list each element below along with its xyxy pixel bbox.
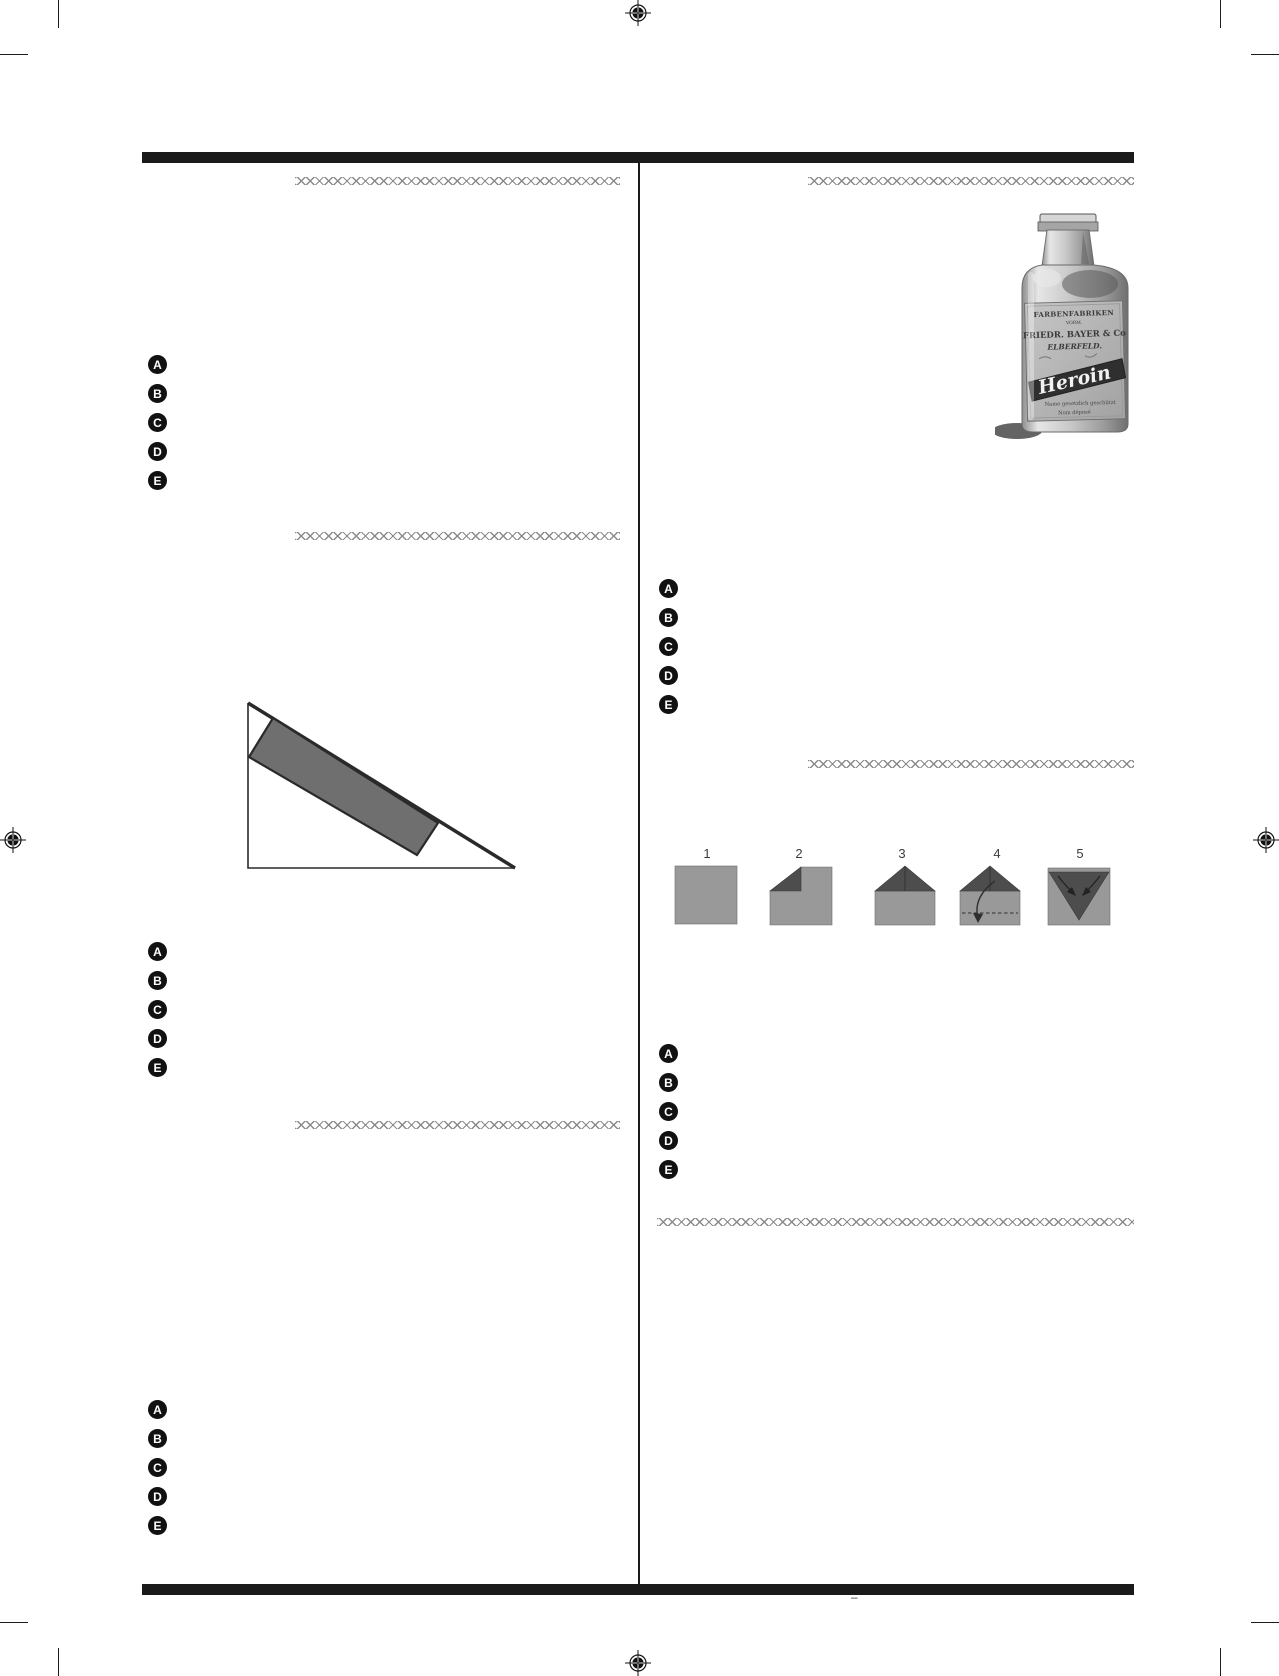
crop-mark (1220, 1648, 1221, 1676)
option-a-marker: A (148, 355, 167, 374)
option-letter: A (153, 1404, 162, 1416)
option-letter: E (153, 475, 161, 487)
option-a-marker: A (148, 942, 167, 961)
answer-options-group-3: A B C D E (148, 1400, 167, 1535)
chain-separator (295, 177, 620, 185)
option-letter: C (664, 1106, 673, 1118)
step-label-5: 5 (1076, 846, 1083, 861)
crop-mark (58, 0, 59, 28)
option-c-marker: C (148, 1458, 167, 1477)
option-letter: A (664, 1048, 673, 1060)
option-letter: A (664, 583, 673, 595)
option-c-marker: C (148, 1000, 167, 1019)
footer-mark: – (851, 1590, 858, 1604)
chain-separator (295, 532, 620, 540)
option-d-marker: D (148, 442, 167, 461)
step-label-1: 1 (703, 846, 710, 861)
option-e-marker: E (148, 1516, 167, 1535)
option-b-marker: B (659, 608, 678, 627)
option-letter: D (153, 1033, 162, 1045)
folding-step1-shape (675, 866, 737, 924)
option-letter: C (664, 641, 673, 653)
answer-options-group-4: A B C D E (659, 579, 678, 714)
option-d-marker: D (148, 1029, 167, 1048)
option-letter: B (153, 388, 162, 400)
option-letter: D (153, 1491, 162, 1503)
answer-options-group-1: A B C D E (148, 355, 167, 490)
paper-folding-figure: 1 2 3 4 5 (660, 840, 1125, 935)
option-letter: D (664, 670, 673, 682)
option-letter: C (153, 417, 162, 429)
option-letter: B (153, 975, 162, 987)
option-letter: A (153, 359, 162, 371)
chain-separator (808, 177, 1134, 185)
option-c-marker: C (659, 637, 678, 656)
registration-mark-icon (625, 0, 651, 26)
option-b-marker: B (148, 971, 167, 990)
crop-mark (1251, 1622, 1279, 1623)
inclined-plane-figure (240, 695, 530, 880)
page-rule-top (142, 152, 1134, 163)
option-letter: B (153, 1433, 162, 1445)
option-letter: D (153, 446, 162, 458)
option-a-marker: A (659, 1044, 678, 1063)
registration-mark-icon (0, 827, 26, 853)
option-a-marker: A (659, 579, 678, 598)
option-e-marker: E (148, 1058, 167, 1077)
chain-separator (657, 1218, 1134, 1226)
option-a-marker: A (148, 1400, 167, 1419)
step-label-4: 4 (993, 846, 1000, 861)
option-letter: E (664, 1164, 672, 1176)
option-b-marker: B (148, 1429, 167, 1448)
option-letter: D (664, 1135, 673, 1147)
bottle-label: FARBENFABRIKEN VORM. FRIEDR. BAYER & Co … (1022, 301, 1128, 422)
registration-mark-icon (1253, 827, 1279, 853)
folding-step3-shape (875, 866, 935, 925)
option-b-marker: B (148, 384, 167, 403)
folding-step5-shape (1048, 868, 1110, 925)
option-letter: A (153, 946, 162, 958)
answer-options-group-5: A B C D E (659, 1044, 678, 1179)
document-page: A B C D E A B C D E A B C D E A B C D E … (0, 0, 1279, 1676)
option-b-marker: B (659, 1073, 678, 1092)
option-letter: E (153, 1520, 161, 1532)
crop-mark (1251, 54, 1279, 55)
folding-step2-shape (770, 867, 832, 925)
label-line-elberfeld: ELBERFELD. (1046, 341, 1102, 351)
crop-mark (58, 1648, 59, 1676)
crop-mark (1220, 0, 1221, 28)
option-c-marker: C (148, 413, 167, 432)
label-line-vorm: VORM. (1065, 320, 1083, 326)
option-d-marker: D (148, 1487, 167, 1506)
option-e-marker: E (659, 695, 678, 714)
option-d-marker: D (659, 1131, 678, 1150)
crop-mark (0, 1622, 28, 1623)
option-e-marker: E (148, 471, 167, 490)
option-letter: E (153, 1062, 161, 1074)
option-d-marker: D (659, 666, 678, 685)
crop-mark (0, 54, 28, 55)
option-letter: E (664, 699, 672, 711)
heroin-bottle-image: FARBENFABRIKEN VORM. FRIEDR. BAYER & Co … (995, 208, 1140, 440)
option-letter: C (153, 1462, 162, 1474)
step-label-2: 2 (795, 846, 802, 861)
plank-shape (249, 718, 438, 855)
option-letter: C (153, 1004, 162, 1016)
label-line-depose: Nom déposé (1058, 409, 1091, 417)
page-rule-bottom (142, 1584, 1134, 1595)
answer-options-group-2: A B C D E (148, 942, 167, 1077)
column-divider (638, 163, 640, 1584)
option-letter: B (664, 612, 673, 624)
option-c-marker: C (659, 1102, 678, 1121)
folding-step4-shape (960, 866, 1020, 925)
chain-separator (808, 760, 1134, 768)
registration-mark-icon (625, 1650, 651, 1676)
option-letter: B (664, 1077, 673, 1089)
chain-separator (295, 1121, 620, 1129)
step-label-3: 3 (898, 846, 905, 861)
option-e-marker: E (659, 1160, 678, 1179)
